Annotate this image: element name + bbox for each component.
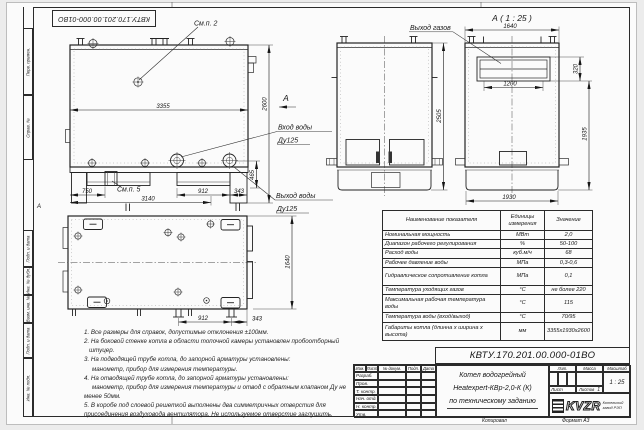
param-name: Габариты котла (длинна х ширина х высота… [383, 323, 501, 341]
param-name: Максимальная рабочая температура воды [383, 295, 501, 313]
note-line: манометр, прибор для измерения температу… [92, 384, 346, 391]
parameters-table: Наименование показателя Единицы измерени… [382, 210, 593, 341]
note-line: 4. На отводящей трубе котла, до запорной… [84, 375, 289, 382]
param-unit: % [501, 240, 545, 249]
titleblock-doc-number: КВТУ.170.201.00.000-01ВО [435, 347, 630, 364]
lit-label: Лит. [549, 365, 576, 372]
titleblock-role-label: Нач. отд. [354, 395, 378, 403]
product-line-2: Heatexpert-КВр-2,0-К (К) [437, 382, 548, 395]
col-izm: Изм. [354, 365, 366, 372]
param-value: 70/95 [545, 313, 593, 323]
logo-cell: KVZR Котельный завод РЭП [549, 393, 631, 418]
titleblock-role-label: Т. контр. [354, 387, 378, 395]
table-row: Габариты котла (длинна х ширина х высота… [383, 323, 593, 341]
param-unit: МВт [501, 231, 545, 240]
param-value: 68 [545, 249, 593, 259]
sidebar-stamp-label: Подп. и дата [26, 327, 31, 354]
param-value: не более 220 [545, 286, 593, 295]
kvzr-logo-text: KVZR [566, 399, 601, 413]
lit-cell-3 [567, 372, 576, 386]
table-row: Максимальная рабочая температура воды°С1… [383, 295, 593, 313]
titleblock-empty-cell [378, 380, 406, 388]
titleblock-empty-cell [406, 372, 421, 380]
table-row: Гидравлическое сопротивление котлаМПа0,1 [383, 268, 593, 286]
table-header-value: Значение [545, 211, 593, 231]
titleblock-empty-cell [421, 403, 436, 411]
note-line: 5. В коробе под слоевой решеткой выполне… [84, 402, 326, 409]
sidebar-stamp-label: Перв. примен. [26, 47, 31, 76]
param-unit: °С [501, 295, 545, 313]
sidebar-stamp-label: Взам. инв. № [26, 296, 31, 323]
sidebar-stamp-label: Инв. № дубл. [26, 268, 31, 294]
sidebar-stamp-box: Инв. № подл. [23, 358, 33, 417]
lit-cell-1 [549, 372, 558, 386]
col-list: Лист [366, 365, 378, 372]
note-line: 2. На боковой стенке котла в области топ… [84, 338, 339, 345]
titleblock-empty-cell [406, 410, 421, 418]
titleblock-empty-cell [378, 387, 406, 395]
titleblock-role-label: Утв. [354, 410, 378, 418]
param-unit: °С [501, 313, 545, 323]
titleblock-empty-cell [406, 380, 421, 388]
note-line: присоединения воздуховода вентилятора. Н… [84, 411, 333, 418]
param-unit: °С [501, 286, 545, 295]
param-unit: МПа [501, 259, 545, 268]
titleblock-empty-cell [378, 403, 406, 411]
sidebar-stamp-box: Подп. и дата [23, 230, 33, 267]
param-name: Температура воды (вход/выход) [383, 313, 501, 323]
table-header-units: Единицы измерения [501, 211, 545, 231]
top-stamp-number: КВТУ.170.201.00.000-01ВО [58, 15, 150, 22]
param-value: 0,3-0,6 [545, 259, 593, 268]
sidebar-stamp-label: Инв. № подл. [26, 374, 31, 401]
table-row: Расход водыкуб.м/ч68 [383, 249, 593, 259]
kvzr-logo-icon [552, 399, 564, 413]
param-name: Рабочее давление воды [383, 259, 501, 268]
titleblock-empty-cell [406, 387, 421, 395]
lit-cell-2 [558, 372, 567, 386]
top-stamp: КВТУ.170.201.00.000-01ВО [52, 10, 156, 27]
sheet-cell: Лист [549, 386, 576, 393]
titleblock-empty-cell [421, 380, 436, 388]
col-podp: Подп. [406, 365, 421, 372]
table-row: Диапазон рабочего регулирования%50-100 [383, 240, 593, 249]
titleblock-empty-cell [421, 372, 436, 380]
copied-label: Копировал [482, 418, 507, 424]
note-line: 1. Все размеры для справок, допустимые о… [84, 329, 269, 336]
titleblock-role-label: Н. контр. [354, 403, 378, 411]
titleblock-body: Изм. Лист № докум. Подп. Дата Разраб.Про… [353, 364, 630, 417]
sidebar-stamp-box: Взам. инв. № [23, 295, 33, 323]
table-header-name: Наименование показателя [383, 211, 501, 231]
param-value: 2,0 [545, 231, 593, 240]
param-unit: мм [501, 323, 545, 341]
sidebar-stamp-box: Подп. и дата [23, 323, 33, 358]
sidebar-stamp-label: Справ. № [26, 118, 31, 138]
table-row: Рабочее давление водыМПа0,3-0,6 [383, 259, 593, 268]
param-unit: куб.м/ч [501, 249, 545, 259]
table-row: Температура уходящих газов°Сне более 220 [383, 286, 593, 295]
param-name: Номинальная мощность [383, 231, 501, 240]
drawing-page: .b12{fill:none;stroke:#232323;stroke-wid… [0, 0, 644, 430]
table-row: Номинальная мощностьМВт2,0 [383, 231, 593, 240]
titleblock-role-label: Пров. [354, 380, 378, 388]
scale-label: Масштаб [603, 365, 631, 372]
param-value: 115 [545, 295, 593, 313]
mass-label: Масса [576, 365, 603, 372]
sidebar-stamp-box: Справ. № [23, 95, 33, 160]
sidebar-stamp-label: Подп. и дата [26, 235, 31, 262]
param-name: Гидравлическое сопротивление котла [383, 268, 501, 286]
note-line: манометр, прибор для измерения температу… [92, 366, 237, 373]
param-name: Диапазон рабочего регулирования [383, 240, 501, 249]
note-line: штуцер. [89, 347, 114, 354]
titleblock-empty-cell [378, 395, 406, 403]
titleblock-empty-cell [378, 410, 406, 418]
col-data: Дата [421, 365, 436, 372]
product-name-cell: Котел водогрейный Heatexpert-КВр-2,0-К (… [436, 365, 549, 418]
titleblock-empty-cell [421, 395, 436, 403]
param-name: Температура уходящих газов [383, 286, 501, 295]
col-doc: № докум. [378, 365, 406, 372]
mass-cell [576, 372, 603, 386]
titleblock-empty-cell [421, 410, 436, 418]
sheets-label: Листов [579, 387, 594, 392]
titleblock-empty-cell [406, 395, 421, 403]
product-line-1: Котел водогрейный [437, 369, 548, 382]
param-value: 0,1 [545, 268, 593, 286]
param-name: Расход воды [383, 249, 501, 259]
format-label: Формат А3 [562, 418, 589, 424]
sheets-cell: Листов 1 [576, 386, 603, 393]
titleblock-role-label: Разраб. [354, 372, 378, 380]
param-value: 3355х1930х2600 [545, 323, 593, 341]
kvzr-logo-subtext: Котельный завод РЭП [603, 401, 624, 411]
notes-block: 1. Все размеры для справок, допустимые о… [80, 329, 380, 424]
note-line: 3. На подводящей трубе котла, до запорно… [84, 356, 290, 363]
table-row: Температура воды (вход/выход)°С70/95 [383, 313, 593, 323]
note-line: менее 50мм. [84, 393, 121, 400]
scale-value: 1 : 25 [603, 372, 631, 393]
sidebar-stamp-box: Инв. № дубл. [23, 267, 33, 295]
product-line-3: по техническому заданию [447, 395, 538, 409]
titleblock-empty-cell [421, 387, 436, 395]
sidebar-stamp-box: Перв. примен. [23, 28, 33, 95]
titleblock-empty-cell [406, 403, 421, 411]
param-value: 50-100 [545, 240, 593, 249]
sheets-value: 1 [597, 387, 600, 393]
titleblock-empty-cell [378, 372, 406, 380]
param-unit: МПа [501, 268, 545, 286]
